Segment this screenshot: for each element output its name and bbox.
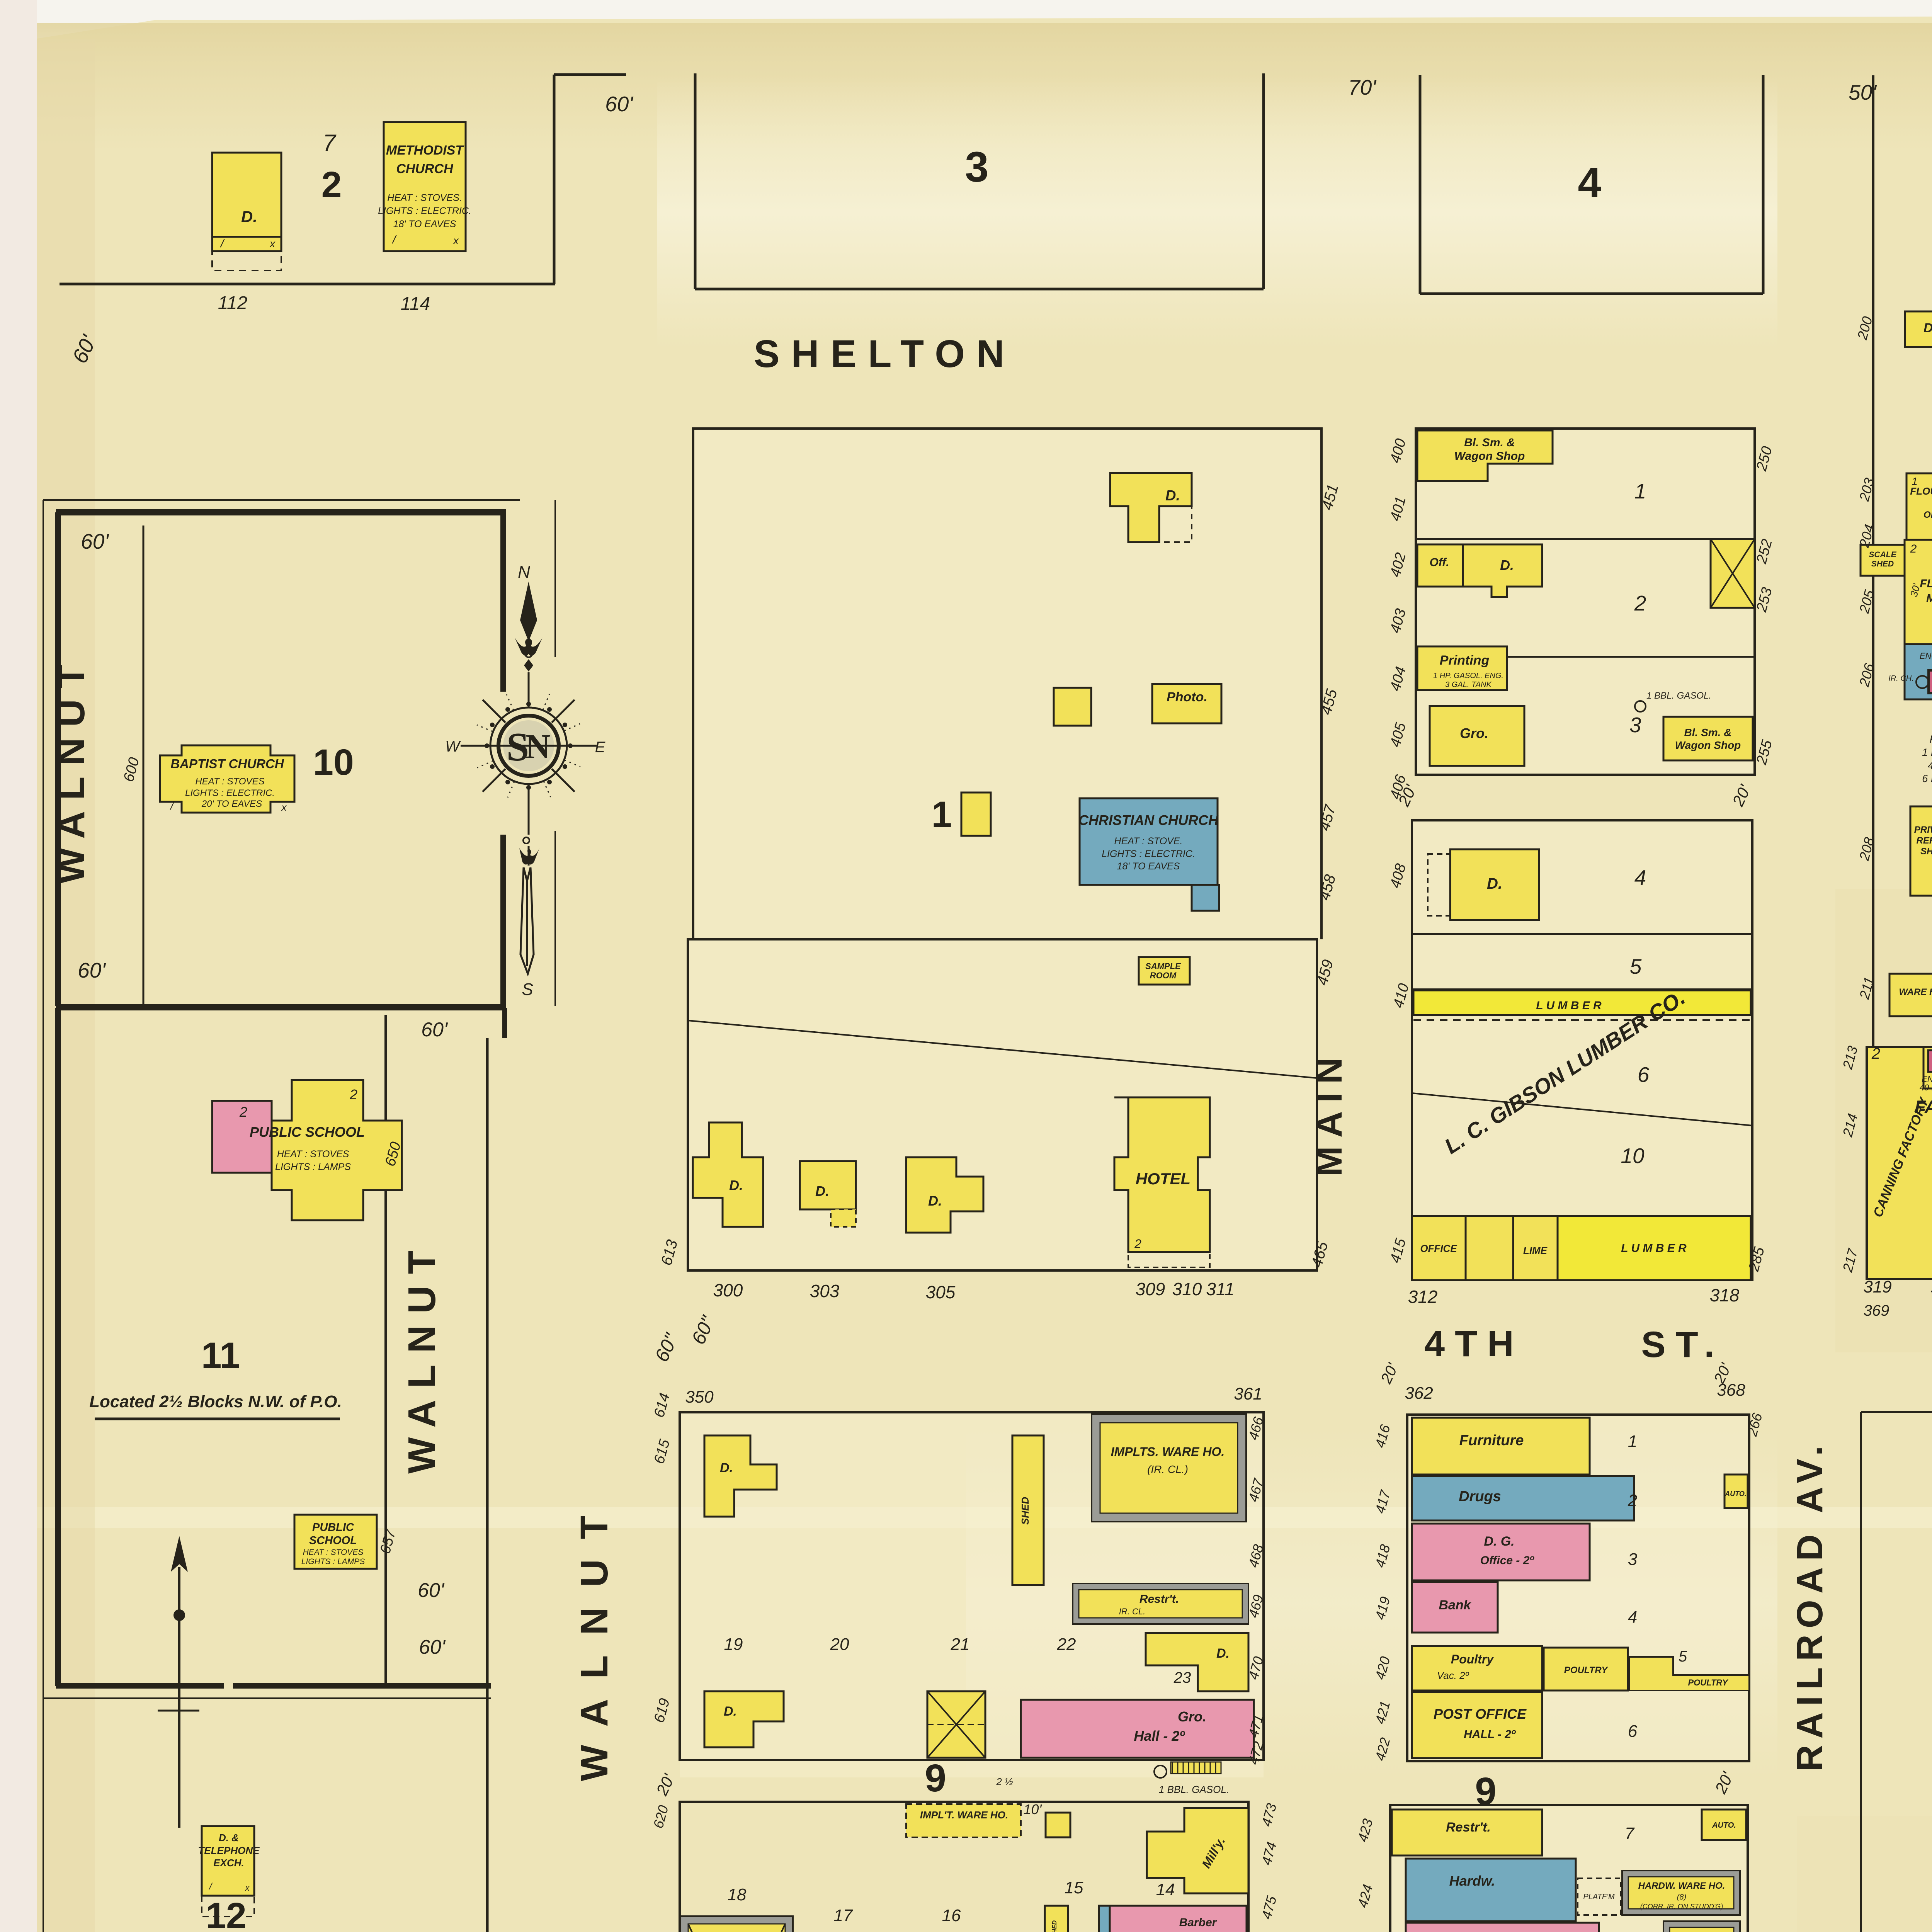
svg-text:Off.: Off. (1429, 556, 1449, 569)
svg-text:EXCH.: EXCH. (213, 1857, 244, 1869)
svg-text:50': 50' (1849, 80, 1877, 104)
svg-text:Wagon Shop: Wagon Shop (1675, 739, 1741, 751)
svg-text:D.: D. (720, 1461, 733, 1475)
svg-text:Bank: Bank (1439, 1598, 1471, 1612)
svg-text:Gro.: Gro. (1178, 1709, 1206, 1725)
svg-text:Restr't.: Restr't. (1446, 1820, 1491, 1835)
svg-text:LIGHTS : ELECTRIC.: LIGHTS : ELECTRIC. (1102, 849, 1195, 859)
svg-text:MILL: MILL (1926, 592, 1932, 605)
svg-text:3: 3 (1628, 1550, 1638, 1569)
svg-text:ST.: ST. (1641, 1324, 1724, 1365)
svg-text:17: 17 (834, 1906, 853, 1925)
svg-text:114: 114 (401, 294, 430, 314)
svg-text:REPAIR: REPAIR (1917, 835, 1932, 846)
svg-text:3 GAL. TANK: 3 GAL. TANK (1445, 680, 1492, 689)
svg-text:ENG. 50 HP.: ENG. 50 HP. (1920, 651, 1932, 661)
svg-text:WALNUT: WALNUT (49, 654, 93, 884)
svg-text:D.: D. (729, 1177, 743, 1193)
svg-text:2: 2 (1871, 1045, 1880, 1062)
svg-text:PUBLIC SCHOOL: PUBLIC SCHOOL (250, 1124, 365, 1140)
svg-text:SHOP: SHOP (1920, 846, 1932, 857)
svg-text:Hall - 2º: Hall - 2º (1134, 1728, 1185, 1744)
svg-text:IR. CH.: IR. CH. (1888, 674, 1914, 683)
svg-text:112: 112 (218, 293, 248, 313)
svg-text:15: 15 (1065, 1878, 1083, 1897)
svg-text:TELEPHONE: TELEPHONE (198, 1845, 260, 1856)
svg-text:11: 11 (201, 1335, 240, 1376)
svg-text:1: 1 (1628, 1432, 1637, 1451)
svg-text:1 BBL. GASOL.: 1 BBL. GASOL. (1159, 1784, 1229, 1795)
svg-text:2: 2 (1634, 591, 1646, 615)
svg-text:60': 60' (81, 529, 109, 553)
svg-text:3: 3 (965, 143, 988, 191)
svg-text:D.: D. (1487, 875, 1502, 892)
svg-text:POST OFFICE: POST OFFICE (1434, 1706, 1527, 1722)
svg-text:SHED: SHED (1871, 560, 1894, 568)
svg-text:9: 9 (925, 1757, 946, 1800)
svg-text:PRIVATE: PRIVATE (1914, 825, 1932, 835)
svg-text:311: 311 (1206, 1279, 1234, 1299)
svg-text:FAIRPLAY CANNING FACT'Y: FAIRPLAY CANNING FACT'Y (1915, 1097, 1932, 1117)
svg-text:2 ½: 2 ½ (996, 1776, 1013, 1787)
svg-text:1: 1 (932, 794, 952, 835)
svg-text:D.: D. (928, 1193, 942, 1209)
svg-text:1 BBL. GASOL.: 1 BBL. GASOL. (1646, 690, 1711, 701)
svg-text:3: 3 (1629, 713, 1641, 737)
svg-text:4 WHEAT CLEANERS. 1 PURIFIER.: 4 WHEAT CLEANERS. 1 PURIFIER. (1928, 760, 1932, 771)
svg-text:POULTRY: POULTRY (1688, 1678, 1728, 1687)
svg-text:303: 303 (810, 1281, 840, 1301)
svg-text:HOTEL: HOTEL (1136, 1170, 1190, 1188)
svg-text:16: 16 (942, 1906, 961, 1925)
svg-text:300: 300 (713, 1280, 743, 1300)
svg-text:LIGHTS : ELECTRIC.: LIGHTS : ELECTRIC. (185, 788, 275, 798)
svg-text:METHODIST: METHODIST (386, 143, 464, 158)
svg-text:MAIN: MAIN (1309, 1049, 1350, 1177)
svg-text:60': 60' (421, 1019, 448, 1041)
svg-text:14: 14 (1156, 1880, 1175, 1899)
svg-text:ROOM: ROOM (1150, 971, 1177, 980)
svg-text:(8): (8) (1677, 1893, 1686, 1901)
svg-text:HEAT : STOVES: HEAT : STOVES (277, 1149, 349, 1160)
svg-text:D.: D. (241, 207, 257, 226)
svg-text:Vac. 2º: Vac. 2º (1437, 1670, 1469, 1681)
svg-text:10': 10' (1024, 1801, 1042, 1817)
svg-text:1 BRAN DUSTER. 1 SMUTTER.: 1 BRAN DUSTER. 1 SMUTTER. (1922, 747, 1932, 758)
svg-text:60': 60' (418, 1579, 445, 1602)
svg-text:OFFICE: OFFICE (1420, 1243, 1457, 1254)
svg-text:AUTO.: AUTO. (1712, 1821, 1736, 1830)
svg-text:HALL - 2º: HALL - 2º (1464, 1728, 1516, 1741)
svg-text:4: 4 (1634, 866, 1646, 889)
svg-text:HEAT : STOVE.: HEAT : STOVE. (1114, 836, 1183, 847)
svg-text:19: 19 (724, 1635, 743, 1654)
svg-text:Located 2½ Blocks N.W. of P.O.: Located 2½ Blocks N.W. of P.O. (89, 1392, 342, 1411)
svg-text:D. G.: D. G. (1484, 1534, 1514, 1549)
svg-text:60': 60' (419, 1636, 446, 1658)
svg-text:Restr't.: Restr't. (1139, 1593, 1179, 1605)
svg-text:L U M B E R: L U M B E R (1536, 999, 1602, 1012)
svg-text:D.: D. (1165, 488, 1180, 504)
svg-text:OFFICE: OFFICE (1923, 510, 1932, 520)
svg-text:HEAT : STOVES: HEAT : STOVES (303, 1548, 364, 1557)
svg-text:Printing: Printing (1440, 653, 1490, 668)
svg-text:Office - 2º: Office - 2º (1480, 1554, 1535, 1567)
svg-text:BAPTIST CHURCH: BAPTIST CHURCH (170, 757, 284, 771)
svg-text:2: 2 (1628, 1491, 1637, 1510)
svg-text:70': 70' (1348, 75, 1377, 99)
svg-text:361: 361 (1234, 1384, 1262, 1403)
svg-text:SAMPLE: SAMPLE (1145, 961, 1181, 971)
svg-text:LIGHTS : ELECTRIC.: LIGHTS : ELECTRIC. (378, 206, 471, 216)
svg-text:x: x (269, 238, 276, 250)
svg-text:20' TO EAVES: 20' TO EAVES (201, 799, 262, 809)
svg-text:IMPLTS. WARE HO.: IMPLTS. WARE HO. (1111, 1445, 1225, 1459)
svg-text:Photo.: Photo. (1167, 690, 1207, 704)
svg-text:POULTRY: POULTRY (1564, 1665, 1608, 1675)
svg-text:1 HP. GASOL. ENG.: 1 HP. GASOL. ENG. (1433, 672, 1503, 680)
svg-text:HARDW. WARE HO.: HARDW. WARE HO. (1638, 1881, 1725, 1891)
svg-text:4: 4 (1578, 159, 1601, 206)
svg-text:WALNUT: WALNUT (400, 1239, 444, 1474)
svg-text:D.: D. (1500, 557, 1514, 573)
svg-text:Poultry: Poultry (1451, 1652, 1494, 1666)
svg-text:D.: D. (815, 1183, 829, 1199)
svg-text:5: 5 (1630, 954, 1642, 978)
svg-text:SHED: SHED (1051, 1920, 1058, 1932)
svg-text:18: 18 (728, 1885, 747, 1904)
svg-text:SCHOOL: SCHOOL (309, 1534, 357, 1547)
svg-text:20: 20 (830, 1635, 849, 1654)
svg-text:x: x (245, 1883, 250, 1893)
svg-text:10: 10 (313, 742, 354, 783)
svg-text:309: 309 (1136, 1279, 1165, 1299)
svg-text:(CORR. IR. ON STUDD'G): (CORR. IR. ON STUDD'G) (1640, 1903, 1723, 1910)
svg-text:362: 362 (1405, 1384, 1433, 1403)
svg-text:PUBLIC: PUBLIC (312, 1521, 354, 1534)
svg-text:SCALE: SCALE (1869, 550, 1896, 559)
svg-text:5: 5 (1679, 1648, 1687, 1665)
svg-text:60': 60' (605, 92, 634, 116)
svg-text:CHRISTIAN CHURCH: CHRISTIAN CHURCH (1078, 812, 1219, 828)
svg-text:S: S (522, 980, 533, 999)
svg-text:22: 22 (1057, 1635, 1076, 1654)
svg-text:2: 2 (321, 164, 342, 205)
svg-text:SHED: SHED (1019, 1497, 1031, 1525)
svg-text:1: 1 (1912, 475, 1918, 487)
svg-text:SHELTON: SHELTON (754, 332, 1016, 376)
svg-text:18' TO EAVES: 18' TO EAVES (393, 219, 456, 230)
svg-text:1: 1 (1634, 479, 1646, 503)
svg-text:x: x (281, 801, 287, 813)
svg-text:N: N (518, 563, 530, 582)
svg-text:Hardw.: Hardw. (1449, 1873, 1495, 1889)
svg-text:Drugs: Drugs (1459, 1488, 1501, 1505)
svg-text:4TH: 4TH (1424, 1323, 1524, 1364)
svg-text:312: 312 (1408, 1287, 1438, 1307)
svg-text:6: 6 (1628, 1722, 1638, 1741)
svg-text:7: 7 (323, 130, 337, 156)
svg-text:6 BOLTS. 2 FLOUR DRESSERS.: 6 BOLTS. 2 FLOUR DRESSERS. (1922, 773, 1932, 784)
svg-text:HEAT : STOVES.: HEAT : STOVES. (387, 192, 462, 203)
svg-text:x: x (452, 235, 459, 247)
svg-text:RAILROAD AV.: RAILROAD AV. (1789, 1440, 1830, 1772)
svg-text:9: 9 (1475, 1770, 1497, 1813)
svg-text:PACKER. 1 ROLLING SCREEN.: PACKER. 1 ROLLING SCREEN. (1930, 733, 1932, 745)
svg-text:21: 21 (951, 1635, 970, 1654)
svg-text:2: 2 (239, 1104, 247, 1120)
svg-text:310: 310 (1172, 1279, 1202, 1299)
svg-text:60': 60' (78, 958, 106, 982)
svg-text:350: 350 (685, 1388, 714, 1406)
svg-text:23: 23 (1173, 1669, 1191, 1686)
svg-text:LIME: LIME (1523, 1245, 1548, 1256)
svg-text:(IR. CL.): (IR. CL.) (1147, 1463, 1188, 1475)
svg-text:L U M B E R: L U M B E R (1621, 1242, 1687, 1255)
svg-text:40 HP.: 40 HP. (1920, 1083, 1932, 1092)
svg-text:6: 6 (1638, 1063, 1650, 1087)
svg-text:4: 4 (1628, 1608, 1637, 1627)
svg-text:AUTO.: AUTO. (1725, 1490, 1747, 1498)
svg-text:Barber: Barber (1179, 1916, 1218, 1929)
svg-text:IMPL'T. WARE HO.: IMPL'T. WARE HO. (920, 1809, 1008, 1821)
svg-text:CHURCH: CHURCH (396, 162, 454, 176)
svg-text:2: 2 (349, 1087, 357, 1102)
svg-text:E: E (595, 739, 606, 756)
svg-text:2: 2 (1134, 1237, 1141, 1251)
svg-text:305: 305 (926, 1282, 956, 1302)
svg-text:Bl. Sm. &: Bl. Sm. & (1464, 436, 1515, 449)
svg-text:D. &: D. & (219, 1832, 239, 1844)
svg-text:WALNUT: WALNUT (573, 1495, 616, 1781)
svg-text:D.: D. (1923, 321, 1932, 335)
svg-text:12: 12 (206, 1895, 247, 1932)
svg-text:D.: D. (1216, 1646, 1230, 1661)
svg-text:319: 319 (1863, 1277, 1891, 1296)
svg-text:IR. CL.: IR. CL. (1119, 1607, 1145, 1616)
svg-text:Bl. Sm. &: Bl. Sm. & (1684, 726, 1732, 738)
svg-text:PLATF'M: PLATF'M (1583, 1893, 1615, 1901)
svg-text:D.: D. (724, 1704, 737, 1719)
svg-text:369: 369 (1864, 1302, 1889, 1319)
svg-text:18' TO EAVES: 18' TO EAVES (1117, 861, 1180, 872)
svg-text:318: 318 (1710, 1285, 1740, 1305)
svg-text:HEAT : STOVES: HEAT : STOVES (195, 776, 264, 787)
svg-text:2: 2 (1910, 543, 1917, 555)
svg-text:W: W (445, 738, 461, 755)
svg-text:7: 7 (1625, 1824, 1635, 1843)
svg-text:N: N (526, 728, 551, 766)
svg-text:Wagon Shop: Wagon Shop (1454, 450, 1525, 463)
svg-text:10: 10 (1621, 1144, 1645, 1168)
svg-text:LIGHTS : LAMPS: LIGHTS : LAMPS (275, 1162, 351, 1172)
svg-text:Gro.: Gro. (1460, 725, 1488, 741)
svg-text:320: 320 (1930, 1279, 1932, 1298)
svg-text:WARE HO.: WARE HO. (1899, 987, 1932, 997)
svg-text:LIGHTS : LAMPS: LIGHTS : LAMPS (301, 1557, 365, 1566)
svg-text:Furniture: Furniture (1459, 1432, 1524, 1449)
